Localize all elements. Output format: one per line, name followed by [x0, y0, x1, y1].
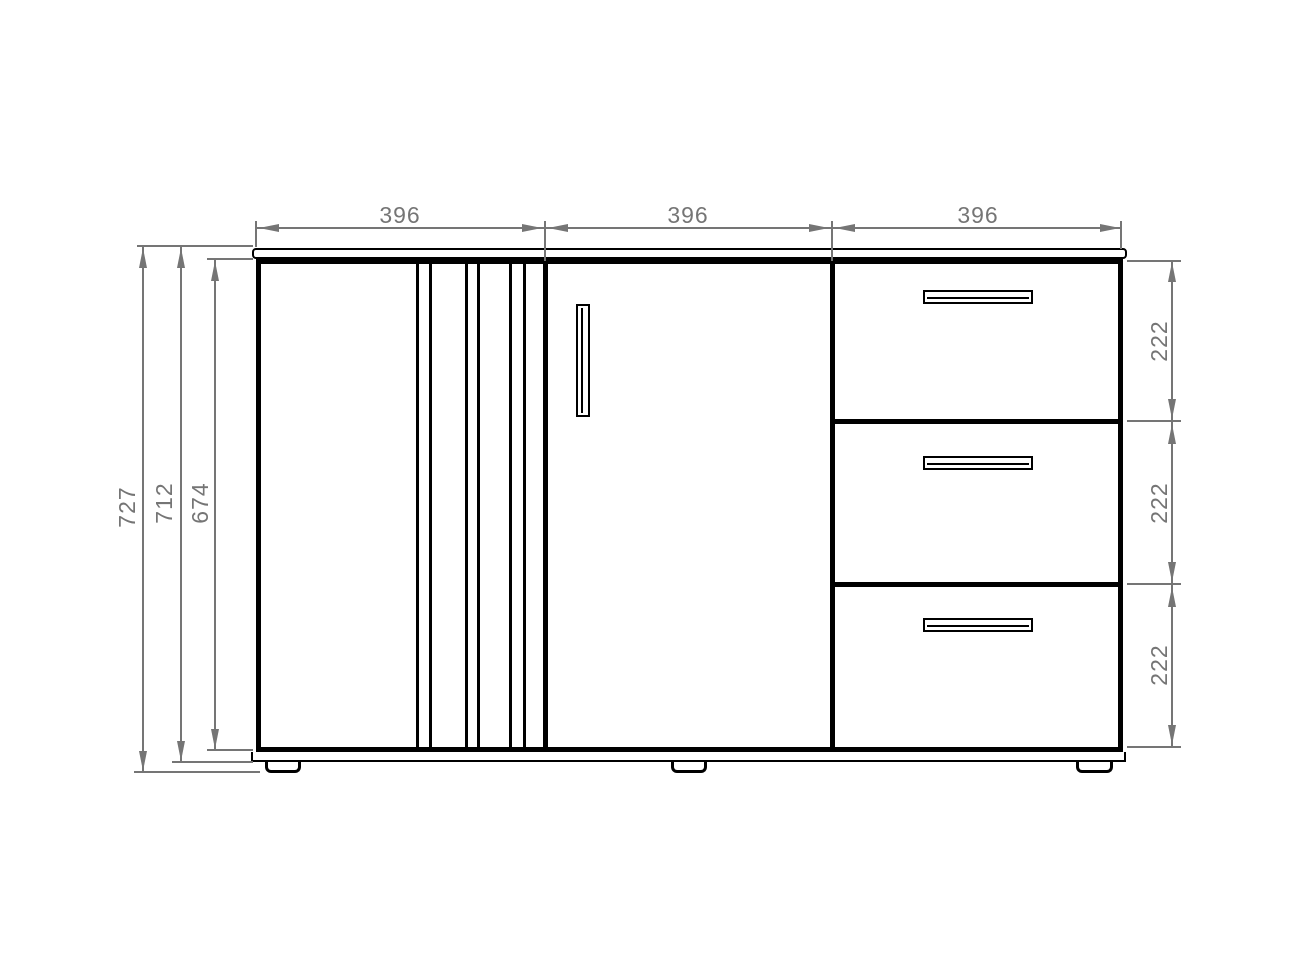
dim-arrow-icon: [1168, 562, 1176, 582]
dim-arrow-icon: [1168, 424, 1176, 444]
dim-label-drawer-2: 222: [1147, 463, 1171, 543]
dim-arrow-icon: [177, 741, 185, 761]
dim-label-width-2: 396: [648, 203, 728, 227]
drawer-divider-2: [835, 582, 1120, 587]
foot-left: [265, 762, 301, 773]
dim-arrow-icon: [211, 261, 219, 281]
left-door-groove-line: [429, 264, 432, 747]
divider-middle-drawer-section: [830, 261, 835, 750]
top-extension-right: [1120, 221, 1122, 249]
dim-label-height-712: 712: [152, 463, 176, 543]
foot-right: [1076, 762, 1113, 773]
drawer-divider-1: [835, 419, 1120, 424]
left-extension-top-727-712: [137, 245, 253, 247]
left-door-groove-line: [465, 264, 468, 747]
left-door-groove-line: [416, 264, 419, 747]
drawer-handle-2-groove: [927, 463, 1029, 465]
dim-arrow-icon: [177, 248, 185, 268]
dim-arrow-icon: [809, 224, 829, 232]
cabinet-bottom-panel: [251, 752, 1126, 762]
left-extension-bottom-712: [172, 761, 253, 763]
drawer-handle-3: [923, 618, 1033, 632]
middle-door-handle-groove: [581, 308, 583, 413]
dim-label-drawer-1: 222: [1147, 301, 1171, 381]
top-extension-mid2: [831, 221, 833, 261]
dim-label-width-1: 396: [360, 203, 440, 227]
dim-line-674: [214, 260, 216, 750]
dim-arrow-icon: [548, 224, 568, 232]
drawer-handle-2: [923, 456, 1033, 470]
divider-left-middle-section: [543, 261, 548, 750]
dim-arrow-icon: [1168, 725, 1176, 745]
dim-arrow-icon: [835, 224, 855, 232]
left-door-groove-line: [523, 264, 526, 747]
top-extension-mid1: [544, 221, 546, 261]
dim-arrow-icon: [259, 224, 279, 232]
dim-label-height-674: 674: [188, 463, 212, 543]
drawer-handle-1-groove: [927, 297, 1029, 299]
dim-arrow-icon: [1100, 224, 1120, 232]
top-extension-left: [255, 221, 257, 247]
dim-arrow-icon: [139, 751, 147, 771]
dim-arrow-icon: [1168, 587, 1176, 607]
furniture-dimension-drawing: 396 396 396 727 712 674 222 222 222: [0, 0, 1306, 980]
cabinet-top-panel: [252, 248, 1127, 259]
dim-arrow-icon: [522, 224, 542, 232]
dim-label-drawer-3: 222: [1147, 625, 1171, 705]
middle-door-handle: [576, 304, 590, 417]
drawer-handle-3-groove: [927, 625, 1029, 627]
dim-line-712: [180, 247, 182, 762]
left-door-groove-line: [509, 264, 512, 747]
dim-arrow-icon: [1168, 399, 1176, 419]
dim-arrow-icon: [211, 729, 219, 749]
dim-arrow-icon: [1168, 262, 1176, 282]
cabinet-body-outline: [256, 259, 1123, 752]
dim-label-height-727: 727: [115, 467, 139, 547]
dim-line-727: [142, 247, 144, 772]
dim-arrow-icon: [139, 248, 147, 268]
foot-middle: [671, 762, 707, 773]
drawer-handle-1: [923, 290, 1033, 304]
left-door-groove-line: [477, 264, 480, 747]
dim-label-width-3: 396: [938, 203, 1018, 227]
left-extension-bottom-727: [134, 771, 260, 773]
